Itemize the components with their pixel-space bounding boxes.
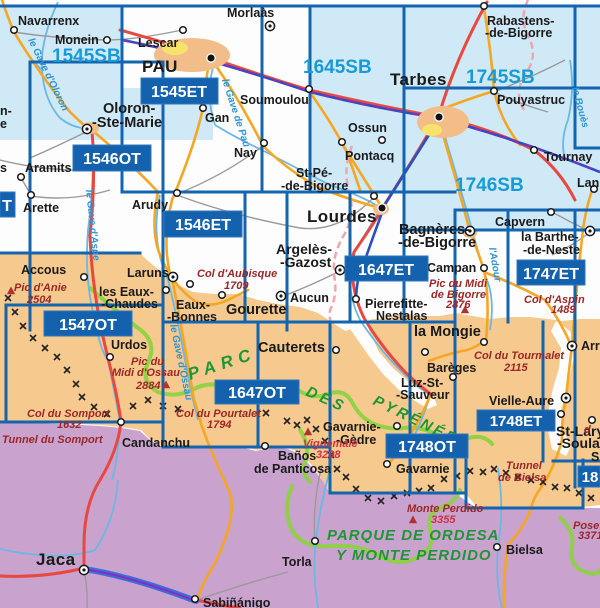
pass-elevation-aspin: 1489	[551, 304, 576, 316]
park-label-ordesa-line1: PARQUE DE ORDESA	[327, 527, 499, 544]
ign-sheet-index-map: le Gave d'Oloron le Gave de Pau le Gave …	[0, 0, 600, 608]
town-label-la-mongie: la Mongie	[414, 324, 481, 340]
town-label-urdos: Urdos	[111, 338, 147, 352]
sheet-label-1547ot[interactable]: 1547OT	[59, 317, 117, 334]
town-label-capvern: Capvern	[495, 215, 545, 229]
town-label-eaux-bonnes-line2: -Bonnes	[167, 310, 217, 324]
pass-elevation-pourtalet: 1794	[207, 419, 231, 431]
sheet-label-1546ot[interactable]: 1546OT	[83, 151, 141, 168]
peak-label-pic-ossau-line2: Midi d'Ossau	[112, 367, 180, 379]
sheet-label-1645sb[interactable]: 1645SB	[303, 57, 372, 78]
town-label-st-pe-line2: -de-Bigorre	[281, 179, 348, 193]
town-label-cauterets: Cauterets	[258, 340, 325, 356]
town-label-lescar: Lescar	[138, 36, 178, 50]
town-label-st-lary-line2: -Soulan	[557, 435, 600, 451]
town-label-accous: Accous	[21, 263, 66, 277]
sheet-label-1546et[interactable]: 1546ET	[175, 217, 231, 234]
town-label-la-barthe-line2: -de-Neste	[523, 243, 580, 257]
peak-elevation-pic-anie: 2504	[26, 294, 51, 306]
pass-elevation-tourmalet: 2115	[503, 362, 529, 374]
edge-fragment-red: d	[584, 424, 591, 436]
peak-elevation-vignemale: 3298	[316, 449, 341, 461]
town-label-la-barthe-line1: la Barthe-	[521, 230, 579, 244]
town-label-torla: Torla	[282, 555, 313, 569]
peak-elevation-pic-ossau: 2884	[135, 380, 160, 392]
town-label-ossun: Ossun	[348, 121, 387, 135]
peak-elevation-pic-bigorre: 2876	[445, 299, 471, 311]
town-label-gan: Gan	[205, 111, 229, 125]
town-label-tournay: Tournay	[544, 150, 592, 164]
town-label-st-pe-line1: St-Pé-	[296, 166, 332, 180]
town-label-morlaas: Morlaàs	[227, 6, 274, 20]
sheet-label-1545sb[interactable]: 1545SB	[52, 46, 121, 67]
town-label-bagneres-line2: -de-Bigorre	[398, 235, 476, 251]
sheet-label-1748et[interactable]: 1748ET	[490, 413, 543, 430]
sheet-label-1545et[interactable]: 1545ET	[151, 84, 207, 101]
town-label-pierrefitte-line2: Nestalas	[376, 309, 427, 323]
city-label-lourdes: Lourdes	[307, 207, 377, 226]
town-label-arudy: Arudy	[132, 198, 168, 212]
sheet-label-1745sb[interactable]: 1745SB	[466, 67, 535, 88]
pass-elevation-somport: 1632	[57, 419, 81, 431]
town-label-pontacq: Pontacq	[345, 149, 394, 163]
town-label-soumoulou: Soumoulou	[240, 93, 309, 107]
town-label-banos-line2: de Panticosa	[254, 462, 332, 476]
pass-label-aubisque: Col d'Aubisque	[197, 268, 277, 280]
peak-elevation-posets: 3371	[578, 530, 600, 542]
sheet-label-partial-left[interactable]: T	[2, 198, 12, 215]
peak-elevation-monte-perdido: 3355	[431, 514, 456, 526]
edge-fragment-3: s	[0, 161, 7, 175]
sheet-label-1747et[interactable]: 1747ET	[523, 266, 579, 283]
sheet-label-1746sb[interactable]: 1746SB	[455, 175, 524, 196]
park-label-ordesa-line2: Y MONTE PERDIDO	[336, 547, 492, 564]
edge-fragment-4: S	[591, 450, 599, 464]
town-label-luz-line2: -Sauveur	[396, 388, 450, 402]
pass-label-tourmalet: Col du Tourmalet	[474, 350, 565, 362]
town-label-aramits: Aramits	[25, 161, 72, 175]
tunnel-label-somport: Tunnel du Somport	[2, 434, 104, 446]
town-label-lannemezan: Lannemezan	[577, 176, 600, 190]
pass-elevation-aubisque: 1709	[224, 280, 249, 292]
edge-fragment-1: n-	[0, 104, 12, 118]
town-label-gourette: Gourette	[226, 302, 286, 318]
tunnel-label-bielsa-line1: Tunnel	[506, 460, 543, 472]
town-label-bareges: Barèges	[427, 361, 476, 375]
town-label-vielle-aure: Vielle-Aure	[489, 394, 554, 408]
town-label-gavarnie: Gavarnie	[396, 462, 450, 476]
town-label-candanchu: Candanchu	[122, 436, 190, 450]
sheet-label-1748ot[interactable]: 1748OT	[398, 439, 456, 456]
town-label-nay: Nay	[234, 146, 257, 160]
town-label-navarrenx: Navarrenx	[18, 14, 79, 28]
city-label-jaca: Jaca	[36, 550, 76, 569]
sheet-label-partial-right[interactable]: 18	[582, 469, 599, 486]
peak-label-pic-anie: Pic d'Anie	[14, 282, 67, 294]
town-label-monein: Monein	[55, 33, 99, 47]
town-label-eaux-chaudes-line2: -Chaudes	[101, 297, 158, 311]
city-label-pau: PAU	[142, 57, 178, 76]
town-label-gavarnie-gedre-line1: Gavarnie-	[323, 420, 381, 434]
tunnel-label-bielsa-line2: de Bielsa	[498, 472, 546, 484]
town-label-aucun: Aucun	[290, 291, 329, 305]
town-label-rabastens-line2: -de-Bigorre	[485, 26, 552, 40]
town-label-pouyastruc: Pouyastruc	[497, 93, 565, 107]
map-svg: le Gave d'Oloron le Gave de Pau le Gave …	[0, 0, 600, 608]
sheet-label-1647et[interactable]: 1647ET	[358, 262, 414, 279]
town-label-campan: Campan	[427, 261, 476, 275]
edge-fragment-2: e	[0, 117, 7, 131]
town-label-sabinanigo: Sabiñánigo	[203, 596, 271, 608]
town-label-laruns: Laruns	[127, 266, 169, 280]
town-label-oloron-line2: -Ste-Marie	[92, 115, 162, 131]
town-label-banos-line1: Baños	[278, 449, 316, 463]
town-label-argeles-line2: -Gazost	[280, 254, 332, 270]
town-label-arette: Arette	[23, 201, 59, 215]
sheet-label-1647ot[interactable]: 1647OT	[228, 385, 286, 402]
city-label-tarbes: Tarbes	[390, 70, 447, 89]
town-label-arreau: Arreau	[581, 339, 600, 353]
town-label-bielsa: Bielsa	[506, 543, 544, 557]
